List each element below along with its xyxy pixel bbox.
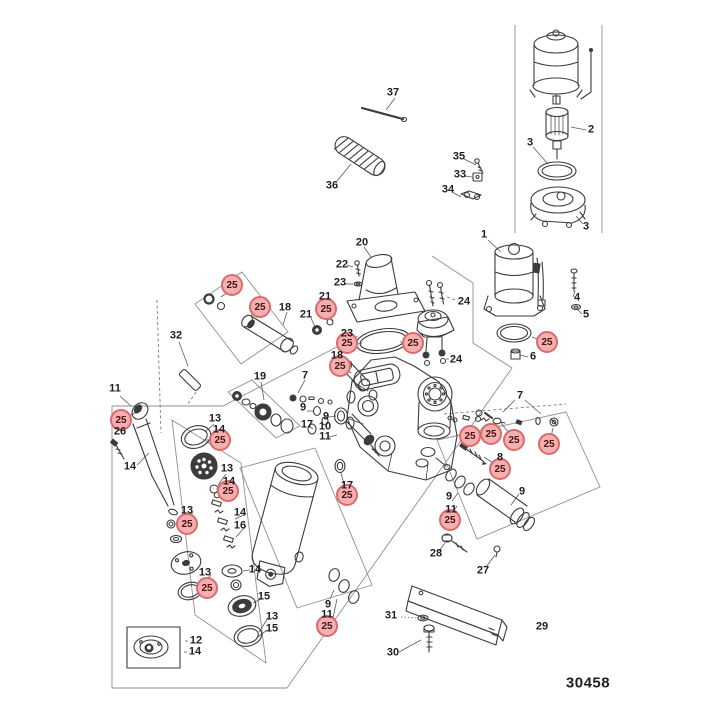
part-label: 1 <box>481 230 487 241</box>
part-label: 17 <box>341 481 353 492</box>
part-label: 37 <box>387 88 399 99</box>
part-label: 17 <box>301 420 313 431</box>
part-label: 32 <box>170 331 182 342</box>
part-label: 7 <box>517 391 523 402</box>
part-label: 14 <box>213 425 225 436</box>
highlighted-part-callout[interactable]: 25 <box>538 433 560 455</box>
part-label: 13 <box>266 612 278 623</box>
highlighted-part-callout[interactable]: 25 <box>480 423 502 445</box>
part-label: 27 <box>477 566 489 577</box>
part-label: 11 <box>321 610 333 621</box>
part-label: 2 <box>588 125 594 136</box>
part-label: 11 <box>445 505 457 516</box>
part-label: 15 <box>266 624 278 635</box>
part-label: 5 <box>583 310 589 321</box>
part-label: 23 <box>341 329 353 340</box>
part-label: 31 <box>385 611 397 622</box>
highlighted-part-callout[interactable]: 25 <box>402 332 424 354</box>
part-label: 11 <box>319 432 331 443</box>
part-label: 14 <box>189 647 201 658</box>
part-label: 15 <box>258 592 270 603</box>
part-label: 21 <box>300 310 312 321</box>
part-label: 14 <box>249 565 261 576</box>
part-label: 14 <box>234 508 246 519</box>
part-label: 3 <box>583 222 589 233</box>
part-label: 21 <box>319 292 331 303</box>
highlighted-part-callout[interactable]: 25 <box>459 425 481 447</box>
part-label: 4 <box>574 293 580 304</box>
part-label: 13 <box>221 464 233 475</box>
part-label: 3 <box>527 138 533 149</box>
part-label: 26 <box>114 427 126 438</box>
part-label: 6 <box>530 352 536 363</box>
part-label: 14 <box>124 462 136 473</box>
part-label: 29 <box>536 622 548 633</box>
part-label: 35 <box>453 152 465 163</box>
part-label: 16 <box>234 521 246 532</box>
highlighted-part-callout[interactable]: 25 <box>536 331 558 353</box>
parts-diagram-page: 3736233353334145202223212118232424618719… <box>0 0 720 720</box>
highlighted-part-callout[interactable]: 25 <box>221 274 243 296</box>
highlighted-part-callout[interactable]: 25 <box>249 296 271 318</box>
part-label: 22 <box>336 260 348 271</box>
part-label: 13 <box>199 568 211 579</box>
part-label: 36 <box>326 181 338 192</box>
part-label: 14 <box>223 477 235 488</box>
part-label: 9 <box>446 492 452 503</box>
part-label: 19 <box>254 372 266 383</box>
part-label: 18 <box>279 303 291 314</box>
part-label: 18 <box>331 351 343 362</box>
exploded-diagram-art <box>0 0 720 720</box>
part-label: 33 <box>454 170 466 181</box>
part-label: 24 <box>450 355 462 366</box>
part-label: 13 <box>181 506 193 517</box>
highlighted-part-callout[interactable]: 25 <box>503 429 525 451</box>
part-label: 7 <box>302 371 308 382</box>
part-label: 9 <box>300 403 306 414</box>
part-label: 30 <box>387 648 399 659</box>
drawing-number: 30458 <box>566 675 610 692</box>
part-label: 8 <box>497 453 503 464</box>
part-label: 24 <box>458 297 470 308</box>
part-label: 9 <box>519 487 525 498</box>
part-label: 28 <box>430 549 442 560</box>
highlighted-part-callout[interactable]: 25 <box>196 577 218 599</box>
part-label: 34 <box>442 185 454 196</box>
part-label: 20 <box>356 238 368 249</box>
part-label: 11 <box>109 384 121 395</box>
part-label: 23 <box>334 278 346 289</box>
